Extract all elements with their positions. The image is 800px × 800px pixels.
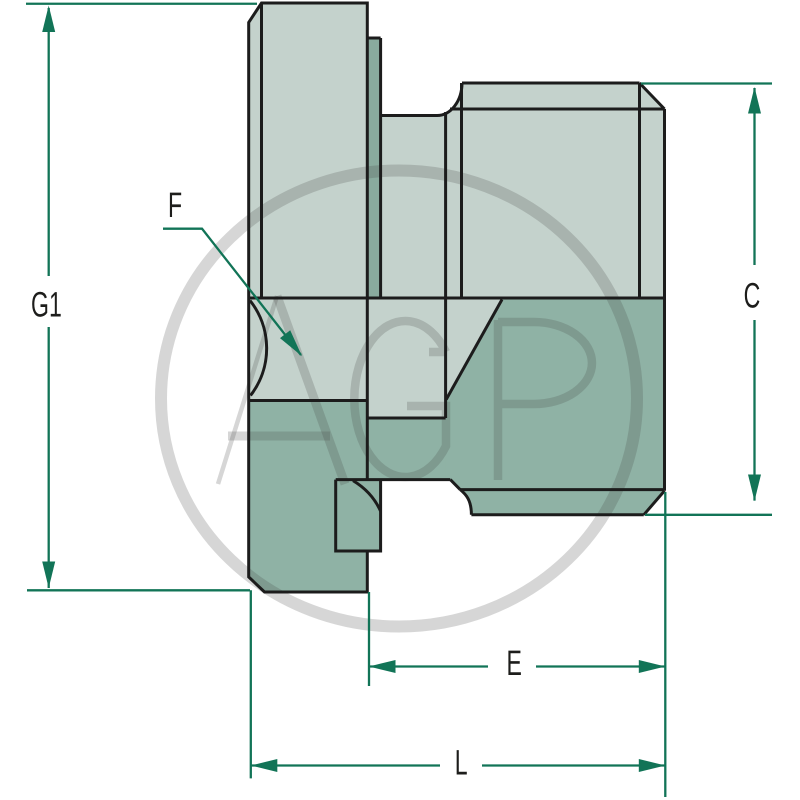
- svg-text:C: C: [744, 276, 761, 316]
- svg-text:E: E: [507, 643, 522, 683]
- svg-text:L: L: [455, 742, 468, 782]
- svg-text:F: F: [168, 185, 182, 225]
- svg-text:G1: G1: [31, 284, 62, 324]
